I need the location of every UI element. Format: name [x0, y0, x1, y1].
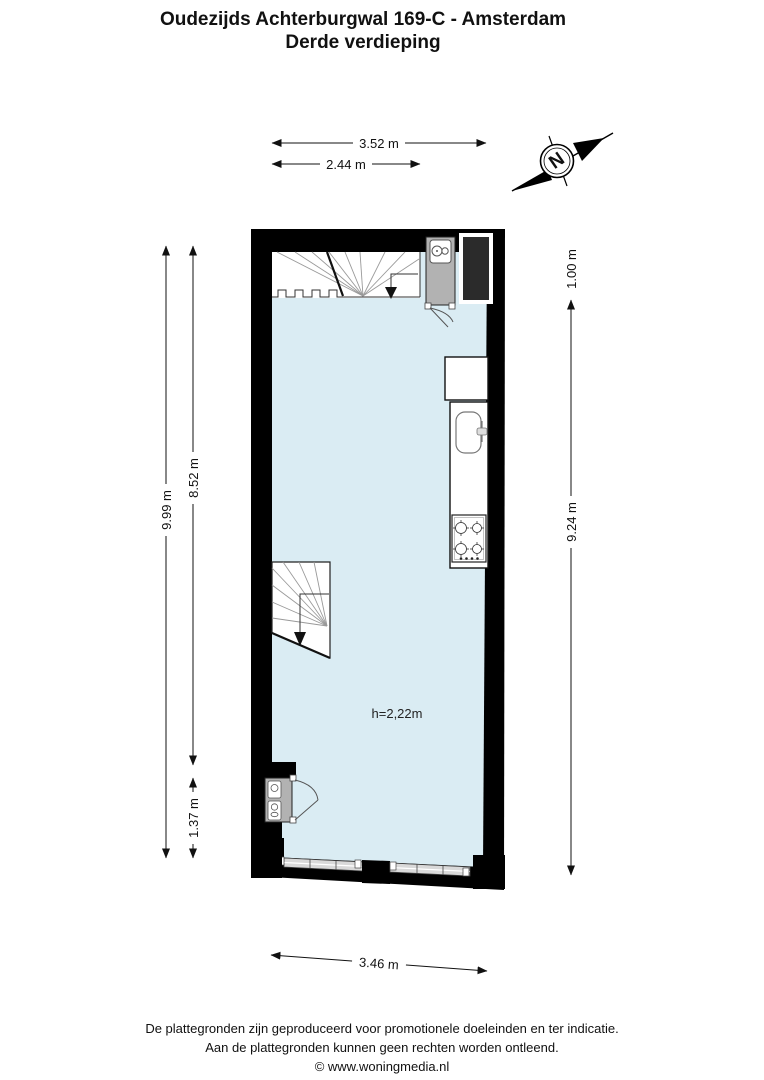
dim-label: 9.24 m	[564, 502, 579, 542]
fridge-cabinet	[445, 357, 488, 400]
disclaimer-line: Aan de plattegronden kunnen geen rechten…	[0, 1038, 764, 1057]
stairs-top-icon	[272, 252, 420, 299]
stove-body	[452, 515, 486, 562]
compass-arrowhead	[573, 138, 604, 161]
window-pier	[362, 860, 390, 884]
floorplan-page: Oudezijds Achterburgwal 169-C - Amsterda…	[0, 0, 764, 1080]
boiler-dial-dot	[436, 250, 438, 252]
window-jamb	[355, 860, 361, 868]
dim-bottom: 3.46 m	[271, 953, 487, 973]
wall-nib-top	[251, 762, 296, 778]
dim-label: 1.00 m	[564, 249, 579, 289]
dim-label: 1.37 m	[186, 798, 201, 838]
meter-cabinet-icon	[265, 778, 292, 822]
disclaimer-line: De plattegronden zijn geproduceerd voor …	[0, 1019, 764, 1038]
wall-corner-right	[473, 855, 505, 889]
stove-icon	[452, 515, 486, 562]
dim-right-upper: 1.00 m	[563, 243, 579, 295]
window-jamb	[390, 862, 396, 870]
wall-nib-bottom	[251, 820, 282, 878]
dim-left-inner-upper: 8.52 m	[185, 246, 201, 765]
boiler-cabinet-icon	[426, 237, 455, 305]
copyright-line: © www.woningmedia.nl	[0, 1057, 764, 1076]
dim-left-inner-lower: 1.37 m	[185, 778, 201, 858]
dim-label: 2.44 m	[326, 157, 366, 172]
dim-top-inner: 2.44 m	[272, 156, 420, 172]
ceiling-height-label: h=2,22m	[372, 706, 423, 721]
window-jamb	[463, 868, 469, 876]
dim-top-outer: 3.52 m	[272, 135, 486, 151]
duct-shaft	[463, 237, 489, 300]
dim-label: 9.99 m	[159, 490, 174, 530]
footer-disclaimer: De plattegronden zijn geproduceerd voor …	[0, 1019, 764, 1076]
meter-unit	[268, 781, 281, 798]
compass-north-icon: N	[512, 133, 613, 191]
dim-label: 8.52 m	[186, 458, 201, 498]
floorplan-canvas: N 3.52 m 2.44 m 9.99 m	[0, 0, 764, 1080]
dim-label: 3.46 m	[359, 955, 400, 973]
dim-left-outer: 9.99 m	[158, 246, 174, 858]
faucet	[477, 428, 487, 435]
dim-right-main: 9.24 m	[563, 300, 579, 875]
door-jamb	[449, 303, 455, 309]
dim-label: 3.52 m	[359, 136, 399, 151]
